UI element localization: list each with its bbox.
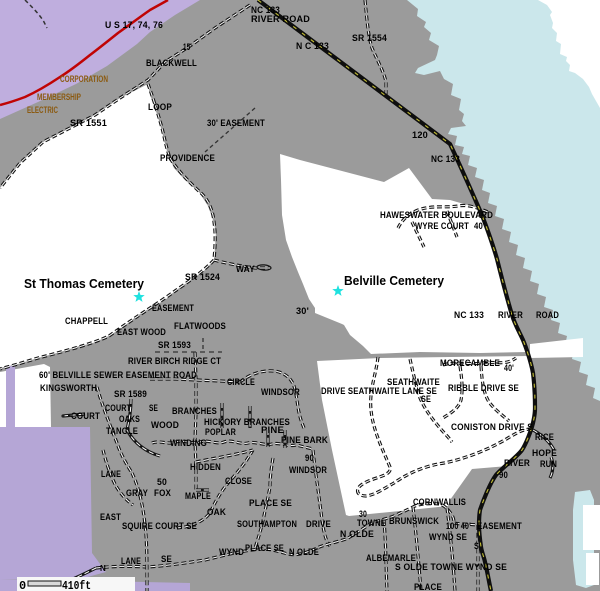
svg-text:N C 133: N C 133 (296, 41, 329, 51)
svg-text:CORNWALLIS: CORNWALLIS (413, 497, 466, 507)
svg-text:MAPLE: MAPLE (185, 491, 211, 501)
svg-text:100 40': 100 40' (446, 521, 471, 531)
svg-text:LANE: LANE (121, 556, 141, 566)
svg-text:PLACE: PLACE (414, 582, 442, 591)
svg-text:NC 133: NC 133 (431, 154, 460, 164)
svg-text:POPLAR: POPLAR (205, 427, 236, 437)
svg-text:WINDSOR: WINDSOR (289, 465, 327, 475)
svg-text:COURT: COURT (71, 411, 100, 421)
svg-text:60' BELVILLE SEWER EASEMENT RO: 60' BELVILLE SEWER EASEMENT ROAD (39, 370, 197, 380)
svg-text:RICE: RICE (535, 432, 554, 442)
svg-text:SE: SE (161, 554, 172, 564)
svg-text:40': 40' (504, 363, 514, 373)
svg-text:SE: SE (421, 394, 431, 404)
svg-text:BRANCHES: BRANCHES (172, 406, 217, 416)
svg-text:WINDSOR: WINDSOR (261, 387, 300, 397)
svg-text:SR 1524: SR 1524 (185, 272, 221, 282)
svg-text:RIVER BIRCH RIDGE CT: RIVER BIRCH RIDGE CT (128, 356, 221, 366)
svg-text:HOPE: HOPE (532, 448, 557, 458)
svg-text:30': 30' (296, 306, 309, 316)
svg-text:Belville Cemetery: Belville Cemetery (344, 273, 445, 288)
svg-text:BRUNSWICK: BRUNSWICK (389, 516, 439, 526)
svg-text:SR 1551: SR 1551 (70, 118, 107, 128)
svg-text:EAST: EAST (100, 512, 121, 522)
svg-text:WYND SE: WYND SE (429, 532, 467, 542)
svg-text:30' EASEMENT: 30' EASEMENT (207, 118, 265, 128)
svg-text:OAK: OAK (207, 507, 226, 517)
svg-text:RIBBLE DRIVE SE: RIBBLE DRIVE SE (448, 383, 519, 393)
svg-text:PINE: PINE (261, 425, 284, 435)
svg-text:FOX: FOX (154, 488, 172, 498)
svg-text:N: N (100, 564, 106, 573)
svg-text:U S 17, 74, 76: U S 17, 74, 76 (105, 20, 163, 30)
svg-text:HIDDEN: HIDDEN (190, 462, 221, 472)
svg-text:WOOD: WOOD (151, 420, 179, 430)
svg-text:St Thomas Cemetery: St Thomas Cemetery (24, 276, 145, 291)
svg-text:HAWESWATER BOULEVARD: HAWESWATER BOULEVARD (380, 210, 493, 220)
svg-text:MEMBERSHIP: MEMBERSHIP (37, 92, 81, 102)
svg-text:DRIVE: DRIVE (306, 519, 331, 529)
svg-text:120: 120 (412, 130, 428, 140)
svg-text:COURT: COURT (105, 403, 131, 413)
svg-text:ROAD: ROAD (536, 310, 559, 320)
svg-text:WYND: WYND (219, 547, 244, 557)
svg-text:0: 0 (19, 579, 26, 591)
svg-text:SOUTHAMPTON: SOUTHAMPTON (237, 519, 297, 529)
svg-text:RIVER: RIVER (498, 310, 523, 320)
svg-text:GRAY: GRAY (126, 488, 148, 498)
svg-text:SR 1589: SR 1589 (114, 389, 147, 399)
svg-text:LANE: LANE (101, 469, 121, 479)
svg-text:TOWNE: TOWNE (357, 518, 386, 528)
svg-text:PLACE SE: PLACE SE (245, 543, 284, 553)
svg-text:40': 40' (474, 221, 485, 231)
svg-text:50: 50 (157, 477, 167, 487)
svg-text:N OLDE: N OLDE (340, 529, 374, 539)
svg-text:ELECTRIC: ELECTRIC (27, 105, 58, 115)
svg-text:PINE BARK: PINE BARK (281, 435, 328, 445)
svg-text:SQUIRE COURT SE: SQUIRE COURT SE (122, 521, 197, 531)
svg-text:SR 1554: SR 1554 (352, 33, 388, 43)
svg-text:WINDING: WINDING (170, 438, 207, 448)
svg-text:OAKS: OAKS (119, 414, 140, 424)
svg-text:S: S (474, 541, 479, 551)
svg-text:FLATWOODS: FLATWOODS (174, 321, 226, 331)
svg-text:CONISTON DRIVE S: CONISTON DRIVE S (451, 422, 533, 432)
svg-text:DRIVE SEATHWAITE LANE SE: DRIVE SEATHWAITE LANE SE (321, 386, 437, 396)
svg-text:30: 30 (359, 509, 367, 519)
svg-text:TANGLE: TANGLE (106, 426, 138, 436)
svg-text:RIVER ROAD: RIVER ROAD (251, 14, 310, 24)
svg-text:CHAPPELL: CHAPPELL (65, 316, 108, 326)
svg-text:NC 133: NC 133 (454, 310, 484, 320)
svg-text:90: 90 (499, 470, 508, 480)
svg-text:CORPORATION: CORPORATION (60, 74, 108, 84)
svg-text:RUN: RUN (540, 459, 557, 469)
svg-text:WAY: WAY (236, 264, 256, 274)
svg-text:RIVER: RIVER (504, 458, 530, 468)
svg-text:SR 1593: SR 1593 (158, 340, 191, 350)
svg-text:MORECAMBLE: MORECAMBLE (440, 358, 500, 368)
svg-text:15': 15' (183, 42, 192, 52)
svg-text:KINGSWORTH: KINGSWORTH (40, 383, 97, 393)
svg-text:90: 90 (305, 453, 314, 463)
svg-text:PLACE SE: PLACE SE (249, 498, 292, 508)
svg-text:CLOSE: CLOSE (225, 476, 252, 486)
svg-text:LOOP: LOOP (148, 102, 172, 112)
svg-text:PROVIDENCE: PROVIDENCE (160, 153, 215, 163)
svg-text:N OLDE: N OLDE (289, 547, 319, 557)
svg-text:CIRCLE: CIRCLE (227, 377, 255, 387)
svg-text:410ft: 410ft (62, 579, 91, 591)
svg-text:WYRE COURT: WYRE COURT (415, 221, 469, 231)
svg-text:SE: SE (149, 403, 158, 413)
svg-text:S OLDE TOWNE WYND SE: S OLDE TOWNE WYND SE (395, 562, 507, 572)
svg-text:EASEMENT: EASEMENT (152, 303, 194, 313)
svg-text:EASEMENT: EASEMENT (477, 521, 522, 531)
svg-text:BLACKWELL: BLACKWELL (146, 58, 197, 68)
svg-text:EAST WOOD: EAST WOOD (117, 327, 166, 337)
